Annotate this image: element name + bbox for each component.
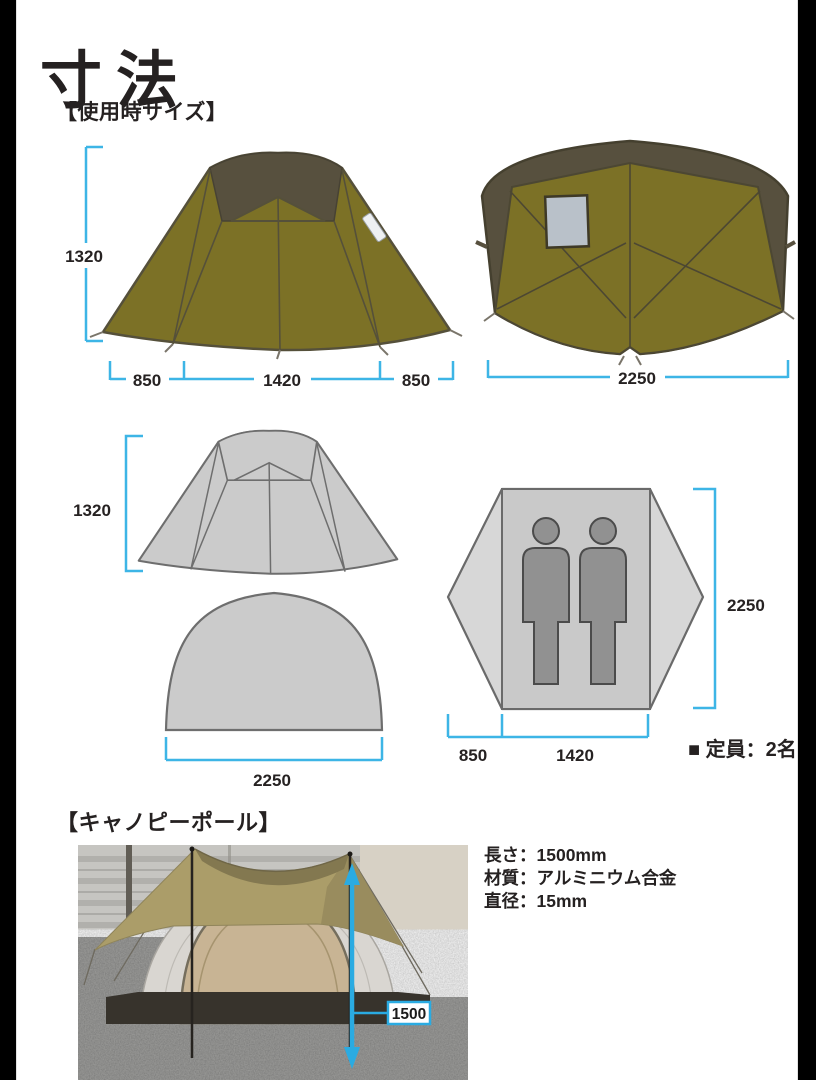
height-dimension-line — [86, 147, 103, 341]
diagram-rear-view: 2250 — [476, 141, 795, 388]
pole-top-knob — [190, 847, 195, 852]
width-dimension-label: 2250 — [618, 369, 656, 388]
window — [545, 195, 589, 247]
width-dimension-label-left: 850 — [459, 746, 487, 765]
width-dimension-bracket — [166, 737, 382, 760]
canopy-photo: 1500 — [78, 845, 468, 1080]
diagram-side-view-gray: 1320 — [73, 431, 397, 574]
spec-page: 寸法 【使用時サイズ】 【キャノピーポール】 ■ 定員：2名 長さ：1500mm… — [0, 0, 816, 1080]
left-black-border — [0, 0, 17, 1080]
diagram-side-view: 1320 850 1420 850 — [65, 147, 462, 390]
tent-rear-face — [495, 163, 783, 354]
height-dimension-label: 1320 — [73, 501, 111, 520]
width-dimension-label-center: 1420 — [263, 371, 301, 390]
depth-dimension-label: 2250 — [727, 596, 765, 615]
width-dimension-bracket — [448, 714, 648, 737]
height-dimension-label: 1320 — [65, 247, 103, 266]
width-dimension-label-right: 850 — [402, 371, 430, 390]
door-panel-shape — [166, 593, 382, 730]
right-black-border — [797, 0, 816, 1080]
svg-text:1500: 1500 — [392, 1006, 426, 1023]
width-dimension-label: 2250 — [253, 771, 291, 790]
height-dimension-bracket — [126, 436, 143, 571]
photo-dimension-label: 1500 — [388, 1002, 430, 1024]
tent-skirt — [106, 992, 430, 1024]
diagram-door-panel-gray: 2250 — [166, 593, 382, 790]
pole-top-knob — [348, 852, 353, 857]
width-dimension-label-center: 1420 — [556, 746, 594, 765]
diagram-floor-plan: 2250 850 1420 — [448, 489, 765, 765]
diagrams-canvas: 1320 850 1420 850 2250 — [0, 0, 816, 1080]
width-dimension-label-left: 850 — [133, 371, 161, 390]
